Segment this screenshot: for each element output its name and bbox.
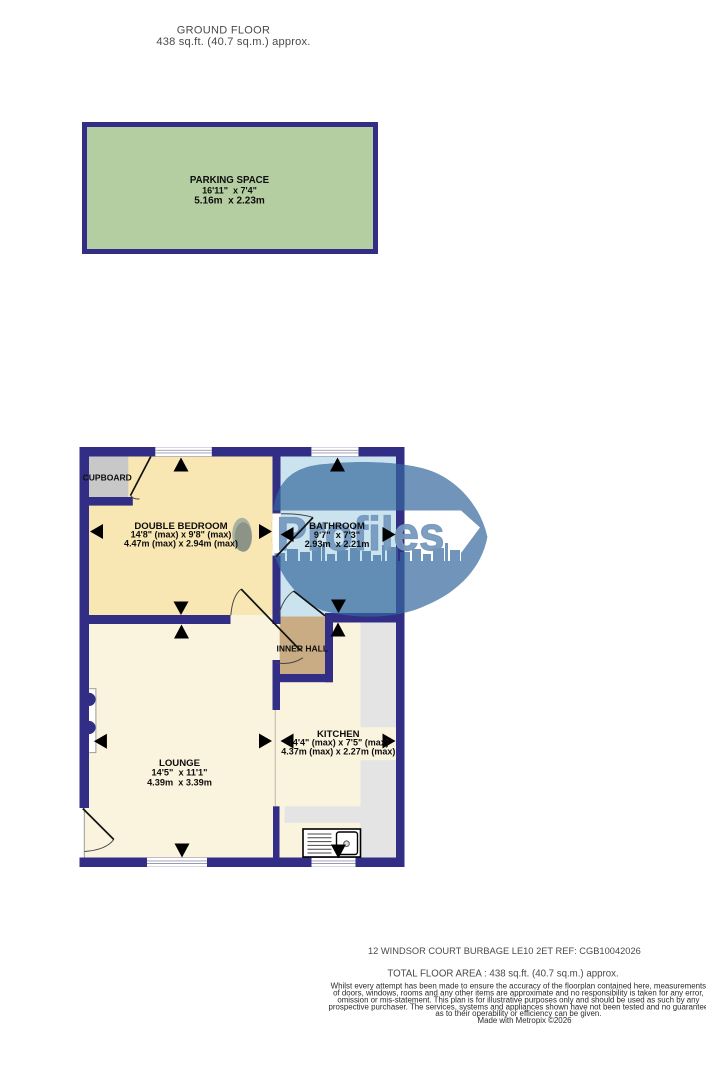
svg-text:438 sq.ft. (40.7 sq.m.) approx: 438 sq.ft. (40.7 sq.m.) approx. [156, 36, 310, 48]
svg-text:TOTAL FLOOR AREA : 438 sq.ft.: TOTAL FLOOR AREA : 438 sq.ft. (40.7 sq.m… [387, 969, 618, 980]
svg-text:2.93m x 2.21m: 2.93m x 2.21m [305, 539, 370, 549]
svg-text:14'5" x 11'1": 14'5" x 11'1" [152, 768, 208, 778]
svg-text:PARKING SPACE: PARKING SPACE [190, 175, 270, 186]
svg-text:4.47m (max) x 2.94m (max): 4.47m (max) x 2.94m (max) [124, 538, 238, 548]
svg-text:5.16m x 2.23m: 5.16m x 2.23m [194, 196, 265, 207]
svg-text:GROUND FLOOR: GROUND FLOOR [177, 25, 270, 37]
svg-text:Made with Metropix ©2026: Made with Metropix ©2026 [478, 1016, 573, 1025]
svg-text:INNER HALL: INNER HALL [277, 643, 328, 653]
svg-text:4.39m x 3.39m: 4.39m x 3.39m [147, 777, 212, 787]
svg-text:4.37m (max) x 2.27m (max): 4.37m (max) x 2.27m (max) [281, 747, 395, 757]
svg-text:CUPBOARD: CUPBOARD [83, 472, 132, 482]
svg-text:12 WINDSOR COURT BURBAGE LE10: 12 WINDSOR COURT BURBAGE LE10 2ET REF: C… [368, 946, 641, 956]
svg-text:16'11" x 7'4": 16'11" x 7'4" [202, 185, 257, 195]
